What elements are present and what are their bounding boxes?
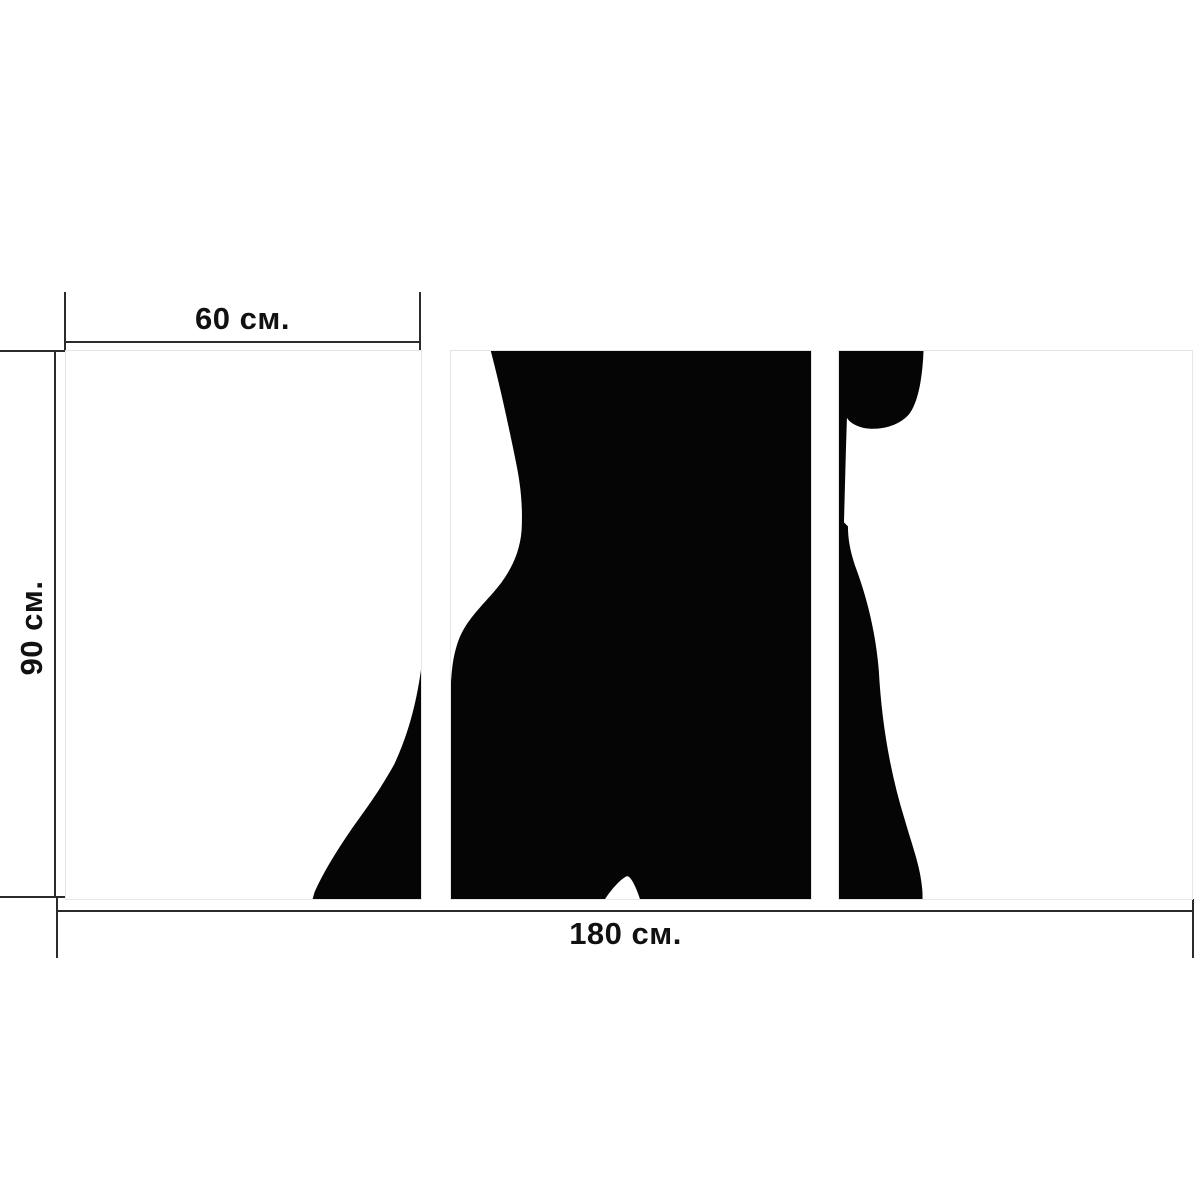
canvas-panel-right xyxy=(838,350,1193,900)
silhouette-torso-shape xyxy=(451,351,811,899)
height-top-tick xyxy=(0,350,65,352)
silhouette-artwork-center xyxy=(451,351,811,899)
silhouette-artwork-left xyxy=(66,351,421,899)
silhouette-artwork-right xyxy=(839,351,1192,899)
silhouette-profile-shape xyxy=(839,351,924,899)
panel-width-left-tick xyxy=(64,292,66,352)
silhouette-thigh-shape xyxy=(313,670,421,899)
panel-width-right-tick xyxy=(419,292,421,352)
total-width-left-tick xyxy=(56,896,58,958)
panel-width-label: 60 см. xyxy=(65,301,420,337)
height-dimension-line xyxy=(54,351,56,898)
total-width-label: 180 см. xyxy=(57,916,1194,952)
triptych-size-diagram: 60 см. 90 см. 180 см. xyxy=(0,0,1200,1200)
total-width-dimension-line xyxy=(56,910,1194,912)
height-label: 90 см. xyxy=(14,581,50,676)
canvas-panel-center xyxy=(450,350,812,900)
canvas-panel-left xyxy=(65,350,422,900)
panel-width-dimension-line xyxy=(64,341,421,343)
total-width-right-tick xyxy=(1192,899,1194,958)
